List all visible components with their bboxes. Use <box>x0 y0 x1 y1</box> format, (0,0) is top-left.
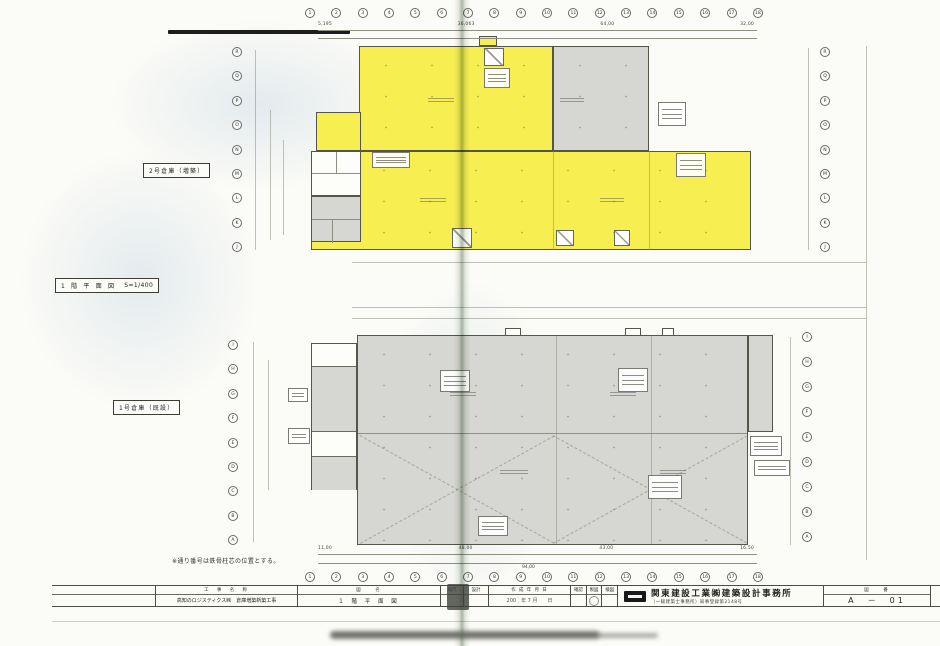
column-line <box>651 336 652 544</box>
upper-building-tag-text: 2号倉庫（増築） <box>149 166 204 175</box>
drawing-name-label: 図 名 <box>298 586 440 595</box>
room-label <box>660 470 686 474</box>
upper-wing-gray-rooms <box>311 196 361 242</box>
approval-label: 検図 <box>602 586 617 595</box>
scan-smear <box>330 631 600 639</box>
grid-bubble: O <box>232 120 242 130</box>
date-cell: 作 成 年 月 日 200 年 7 月 日 <box>488 586 570 606</box>
date-value: 200 年 7 月 日 <box>489 595 570 606</box>
sheet-number-cell: 図 番 A － 01 <box>823 586 930 606</box>
approval-cell: 確認 <box>570 586 586 606</box>
grid-bubble: 9 <box>516 572 526 582</box>
drawing-name-cell: 図 名 １ 階 平 面 図 <box>297 586 440 606</box>
grid-bubble: 5 <box>410 572 420 582</box>
date-label: 作 成 年 月 日 <box>489 586 570 595</box>
grid-bubble: 1 <box>305 572 315 582</box>
grid-bubble: 14 <box>647 8 657 18</box>
grid-bubble: Q <box>232 71 242 81</box>
grid-bubble: D <box>228 462 238 472</box>
annotation-box <box>288 428 310 444</box>
annotation-box <box>618 368 648 392</box>
grid-bubble: K <box>820 218 830 228</box>
boundary-line <box>352 262 866 263</box>
grid-bubble: F <box>802 407 812 417</box>
dimension-value: 64,00 <box>600 22 614 27</box>
sheet-edge-line <box>52 621 940 622</box>
drawing-title-text: 1 階 平 面 図 <box>61 281 116 290</box>
grid-bubble: 9 <box>516 8 526 18</box>
upper-warehouse-office-room <box>316 112 361 151</box>
dimension-value: 16,50 <box>740 546 754 551</box>
grid-bubble: G <box>228 389 238 399</box>
grid-bubble: 5 <box>410 8 420 18</box>
grid-bubble: H <box>802 357 812 367</box>
grid-bubble: 13 <box>621 8 631 18</box>
lower-warehouse-left-wing <box>311 343 357 490</box>
grid-bubble: 8 <box>489 8 499 18</box>
wall-line <box>312 173 360 174</box>
dimension-line <box>318 563 757 564</box>
grid-bubble: J <box>820 242 830 252</box>
grid-bubble: 2 <box>331 8 341 18</box>
dimension-line <box>253 342 254 542</box>
grid-bubble: D <box>802 457 812 467</box>
grid-bubble: G <box>802 382 812 392</box>
wall-line <box>332 219 333 243</box>
grid-bubble: N <box>820 145 830 155</box>
grid-bubble: 15 <box>674 8 684 18</box>
approval-label: 確認 <box>571 586 586 595</box>
grid-bubble: R <box>820 47 830 57</box>
dimension-line <box>283 140 284 235</box>
wing-gray-room <box>312 366 356 432</box>
stair-shaft <box>614 230 630 246</box>
grid-bubble: 4 <box>384 572 394 582</box>
grid-bubble: R <box>232 47 242 57</box>
dimension-line <box>270 110 271 240</box>
annotation-box <box>750 436 782 456</box>
scan-smear <box>598 633 658 638</box>
column-line <box>649 151 650 250</box>
grid-bubble: 6 <box>437 8 447 18</box>
approval-stamp-area <box>571 595 586 606</box>
upper-wing-white-rooms <box>311 151 361 196</box>
dock-structure <box>505 328 521 336</box>
grid-bubble: L <box>820 193 830 203</box>
grid-bubble: J <box>232 242 242 252</box>
annotation-box <box>676 153 706 177</box>
drawing-name-value: １ 階 平 面 図 <box>298 595 440 606</box>
grid-bubble: B <box>228 511 238 521</box>
grid-letters-upper-left: RQPONMLKJ <box>232 47 242 252</box>
grid-bubble: 15 <box>674 572 684 582</box>
annotation-box <box>484 68 510 88</box>
grid-numbers-top: 123456789101112131415161718 <box>305 8 763 18</box>
grid-letters-lower-left: IHGFEDCBA <box>228 340 238 545</box>
room-label <box>420 198 446 202</box>
grid-bubble: 17 <box>727 572 737 582</box>
grid-bubble: 13 <box>621 572 631 582</box>
grid-bubble: P <box>820 96 830 106</box>
title-block-end-cell <box>930 586 940 606</box>
fold-crease <box>454 0 470 646</box>
grid-bubble: 10 <box>542 572 552 582</box>
approval-cell: 検図 <box>601 586 617 606</box>
company-registration: （一級建築士事務所）知事登録第2148号 <box>651 599 792 605</box>
dimension-value: 32,00 <box>740 22 754 27</box>
room-label <box>600 198 624 202</box>
company-cell: 関東建設工業㈱建築設計事務所 （一級建築士事務所）知事登録第2148号 <box>617 586 823 606</box>
grid-bubble: K <box>232 218 242 228</box>
project-name-cell: 工 事 名 称 高知のロジスティクス㈱ 倉庫増築新築工事 <box>155 586 297 606</box>
grid-bubble: 1 <box>305 8 315 18</box>
room-label <box>610 392 636 396</box>
title-block-empty-cell <box>52 586 155 606</box>
drawing-title-box: 1 階 平 面 図 S=1/400 <box>55 278 159 293</box>
company-logo <box>624 591 646 602</box>
lower-building-tag: 1号倉庫（既設） <box>113 400 180 415</box>
dimension-line <box>808 48 809 250</box>
project-name-label: 工 事 名 称 <box>156 586 297 595</box>
grid-bubble: 3 <box>358 572 368 582</box>
grid-bubble: A <box>228 535 238 545</box>
dock-structure <box>625 328 641 336</box>
annotation-box <box>648 475 682 499</box>
sheet-number-value: A － 01 <box>824 595 930 606</box>
company-name: 関東建設工業㈱建築設計事務所 <box>651 587 792 599</box>
wall-line <box>336 152 337 173</box>
approval-cells: 確認 製図 検図 <box>570 586 617 606</box>
grid-bubble: 12 <box>595 8 605 18</box>
lower-building-tag-text: 1号倉庫（既設） <box>119 403 174 412</box>
grid-bubble: 4 <box>384 8 394 18</box>
grid-bubble: E <box>802 432 812 442</box>
dimension-labels-top: 5,19536,06364,0032,00 <box>318 22 754 27</box>
grid-bubble: C <box>802 482 812 492</box>
site-boundary-line <box>866 46 867 560</box>
dimension-line <box>318 30 757 31</box>
annotation-box <box>288 388 308 402</box>
dimension-value: 43,00 <box>599 546 613 551</box>
grid-bubble: C <box>228 486 238 496</box>
grid-bubble: I <box>802 332 812 342</box>
project-name-value: 高知のロジスティクス㈱ 倉庫増築新築工事 <box>156 595 297 606</box>
stair-shaft <box>484 48 504 66</box>
grid-bubble: 3 <box>358 8 368 18</box>
grid-bubble: 10 <box>542 8 552 18</box>
dimension-line <box>268 360 269 490</box>
column-line <box>556 336 557 544</box>
grid-numbers-bottom: 123456789101112131415161718 <box>305 572 763 582</box>
room-label <box>560 98 584 102</box>
grid-bubble: E <box>228 438 238 448</box>
dimension-total: 94,00 <box>522 565 535 570</box>
grid-bubble: P <box>232 96 242 106</box>
scanned-floor-plan-sheet: 5,19536,06364,0032,00 11,0048,0043,0016,… <box>0 0 940 646</box>
grid-bubble: 11 <box>568 572 578 582</box>
boundary-line <box>352 307 866 308</box>
wall-line <box>312 219 360 220</box>
grid-bubble: 2 <box>331 572 341 582</box>
grid-bubble: 16 <box>700 8 710 18</box>
grid-bubble: F <box>228 413 238 423</box>
approval-cell: 製図 <box>586 586 602 606</box>
dimension-line <box>318 38 757 39</box>
grid-bubble: 16 <box>700 572 710 582</box>
grid-letters-lower-right: IHGFEDCBA <box>802 332 812 542</box>
dimension-value: 11,00 <box>318 546 332 551</box>
wing-gray-room <box>312 456 356 490</box>
dock-structure <box>662 328 674 336</box>
upper-building-tag: 2号倉庫（増築） <box>143 163 210 178</box>
annotation-box <box>754 460 790 476</box>
room-label <box>500 470 528 474</box>
lower-warehouse-main <box>357 335 748 545</box>
grid-bubble: I <box>228 340 238 350</box>
dimension-line <box>255 50 256 250</box>
grid-bubble: B <box>802 507 812 517</box>
grid-bubble: O <box>820 120 830 130</box>
grid-bubble: 17 <box>727 8 737 18</box>
grid-bubble: 6 <box>437 572 447 582</box>
stair-shaft <box>556 230 574 246</box>
grid-bubble: A <box>802 532 812 542</box>
grid-bubble: Q <box>820 71 830 81</box>
grid-bubble: N <box>232 145 242 155</box>
approval-label: 製図 <box>587 586 602 595</box>
grid-bubble: 11 <box>568 8 578 18</box>
approval-stamp-area <box>602 595 617 606</box>
title-block: 工 事 名 称 高知のロジスティクス㈱ 倉庫増築新築工事 図 名 １ 階 平 面… <box>52 585 940 607</box>
grid-bubble: 8 <box>489 572 499 582</box>
dimension-line <box>318 554 757 555</box>
sheet-number-label: 図 番 <box>824 586 930 595</box>
annotation-box <box>478 516 508 536</box>
room-label <box>428 98 454 102</box>
grid-bubble: 14 <box>647 572 657 582</box>
column-line <box>553 151 554 250</box>
grid-bubble: M <box>232 169 242 179</box>
grid-bubble: 18 <box>753 8 763 18</box>
annotation-box <box>372 152 410 168</box>
grid-bubble: 12 <box>595 572 605 582</box>
approval-stamp-area <box>587 595 602 606</box>
footnote: ※通り番号は鉄骨柱芯の位置とする。 <box>172 556 280 565</box>
boundary-line <box>352 318 866 319</box>
grid-letters-upper-right: RQPONMLKJ <box>820 47 830 252</box>
lower-warehouse-right-wing <box>748 335 773 432</box>
dimension-value: 5,195 <box>318 22 332 27</box>
company-text: 関東建設工業㈱建築設計事務所 （一級建築士事務所）知事登録第2148号 <box>651 587 792 605</box>
grid-bubble: M <box>820 169 830 179</box>
grid-bubble: L <box>232 193 242 203</box>
dimension-labels-bottom: 11,0048,0043,0016,50 <box>318 546 754 551</box>
dimension-line <box>790 337 791 545</box>
annotation-box <box>658 102 686 126</box>
crease-shadow <box>447 584 469 610</box>
grid-bubble: 18 <box>753 572 763 582</box>
grid-bubble: H <box>228 364 238 374</box>
drawing-scale-text: S=1/400 <box>124 282 153 289</box>
